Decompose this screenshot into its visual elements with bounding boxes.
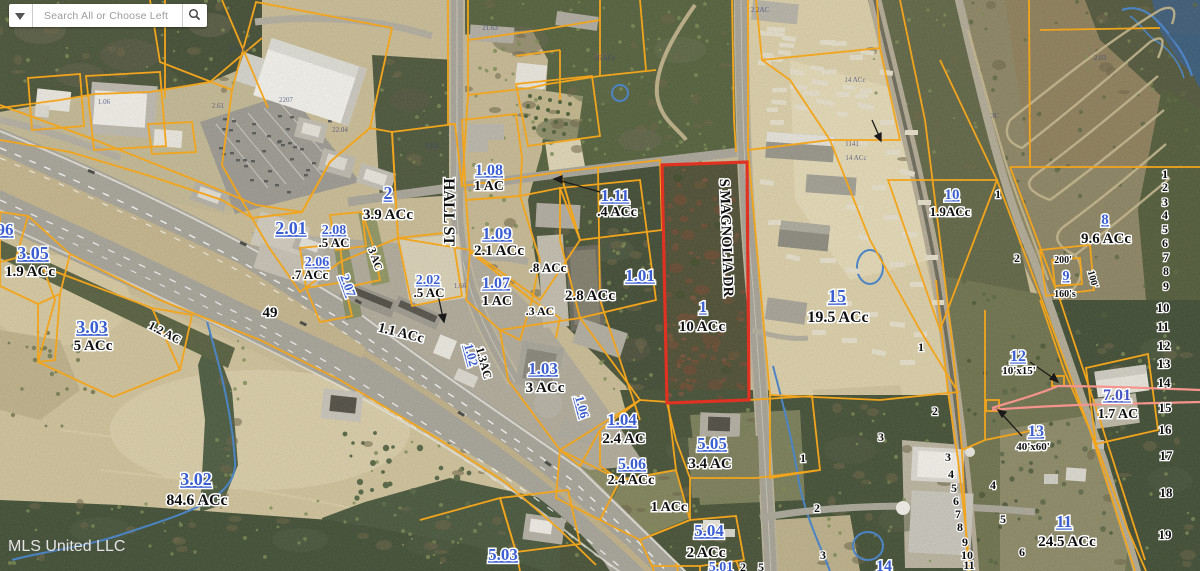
svg-text:10: 10: [945, 187, 960, 203]
svg-text:3.03: 3.03: [76, 317, 108, 337]
svg-text:2151: 2151: [425, 142, 440, 150]
svg-text:1.01: 1.01: [625, 266, 655, 285]
svg-text:2.2AC: 2.2AC: [751, 6, 770, 14]
svg-text:1.9 ACc: 1.9 ACc: [5, 264, 55, 280]
svg-text:9: 9: [962, 535, 968, 549]
svg-text:14 ACc: 14 ACc: [845, 154, 866, 162]
svg-text:5: 5: [758, 560, 764, 571]
svg-text:8: 8: [957, 520, 963, 534]
svg-text:3.9 ACc: 3.9 ACc: [363, 207, 413, 223]
svg-text:96: 96: [0, 220, 14, 239]
svg-text:3.05: 3.05: [17, 243, 49, 263]
svg-text:12: 12: [1010, 348, 1026, 365]
svg-text:22.04: 22.04: [332, 126, 348, 134]
svg-text:7.01: 7.01: [1103, 387, 1131, 404]
svg-text:4: 4: [1162, 208, 1168, 222]
svg-text:5.01: 5.01: [709, 560, 734, 571]
svg-text:.7 ACc: .7 ACc: [292, 267, 329, 282]
svg-text:.8 ACc: .8 ACc: [530, 260, 567, 275]
svg-text:5.04: 5.04: [694, 521, 724, 540]
svg-text:15: 15: [1159, 400, 1173, 415]
svg-text:1: 1: [918, 340, 924, 354]
svg-text:1.03: 1.03: [528, 359, 558, 378]
svg-text:14: 14: [876, 558, 892, 571]
svg-text:49: 49: [263, 305, 278, 321]
svg-text:6: 6: [953, 494, 959, 508]
svg-text:1.06: 1.06: [98, 98, 111, 106]
svg-text:1.04: 1.04: [607, 410, 637, 429]
svg-text:3: 3: [878, 430, 884, 444]
svg-text:1.7 AC: 1.7 AC: [1098, 407, 1138, 422]
svg-text:1.11: 1.11: [601, 186, 630, 205]
svg-text:21.63: 21.63: [482, 24, 498, 32]
svg-text:1.9ACc: 1.9ACc: [930, 204, 971, 219]
svg-text:1: 1: [699, 299, 707, 316]
svg-text:84.6 ACc: 84.6 ACc: [166, 492, 227, 509]
svg-text:5: 5: [1162, 222, 1168, 236]
svg-text:9: 9: [1163, 279, 1169, 293]
svg-text:1: 1: [800, 451, 806, 465]
svg-text:22 ACc: 22 ACc: [229, 46, 250, 54]
svg-text:11: 11: [963, 558, 974, 571]
svg-text:19.5 ACc: 19.5 ACc: [807, 309, 868, 326]
svg-text:.3 AC: .3 AC: [526, 304, 555, 318]
svg-text:24.5 ACc: 24.5 ACc: [1038, 534, 1096, 550]
svg-text:7: 7: [1163, 250, 1169, 264]
svg-text:10'x15': 10'x15': [1002, 365, 1036, 377]
svg-text:HALL ST: HALL ST: [440, 178, 457, 246]
svg-text:3.02: 3.02: [180, 469, 212, 489]
svg-text:2207: 2207: [279, 96, 294, 104]
svg-text:13: 13: [1028, 423, 1044, 440]
svg-text:2.8 ACc: 2.8 ACc: [565, 288, 615, 304]
svg-text:2 ACc: 2 ACc: [687, 545, 726, 561]
svg-text:2: 2: [740, 560, 746, 571]
svg-text:2: 2: [1014, 251, 1020, 265]
svg-text:16: 16: [1159, 422, 1173, 437]
svg-text:10 ACc: 10 ACc: [679, 319, 726, 335]
svg-text:2: 2: [1162, 180, 1168, 194]
svg-text:1: 1: [995, 187, 1001, 201]
svg-text:3C: 3C: [991, 112, 1000, 120]
svg-text:13: 13: [1158, 356, 1172, 371]
svg-text:.5 AC: .5 AC: [413, 285, 444, 300]
svg-text:6: 6: [1019, 545, 1025, 559]
svg-text:6: 6: [1162, 236, 1168, 250]
svg-text:2.03: 2.03: [1094, 54, 1107, 62]
svg-text:8: 8: [1163, 264, 1169, 278]
svg-text:1.66: 1.66: [454, 282, 467, 290]
svg-text:12: 12: [1158, 338, 1171, 353]
svg-text:5.06: 5.06: [618, 456, 646, 473]
svg-text:160's: 160's: [1054, 289, 1076, 300]
svg-text:1141: 1141: [845, 140, 859, 148]
svg-text:1 ACc: 1 ACc: [651, 500, 687, 515]
svg-text:1: 1: [1162, 167, 1168, 181]
svg-text:11: 11: [1056, 512, 1072, 531]
svg-text:3: 3: [1162, 195, 1168, 209]
svg-text:9.6 ACc: 9.6 ACc: [1081, 231, 1131, 247]
svg-text:3: 3: [945, 450, 951, 464]
svg-text:2: 2: [384, 183, 393, 203]
svg-text:9: 9: [1063, 269, 1070, 284]
svg-text:1.09: 1.09: [482, 224, 512, 243]
svg-text:40'x60': 40'x60': [1016, 441, 1050, 453]
svg-text:5: 5: [951, 481, 957, 495]
svg-text:11: 11: [1157, 319, 1169, 334]
svg-text:.5 AC: .5 AC: [318, 235, 349, 250]
svg-text:1.08: 1.08: [475, 162, 503, 179]
svg-text:18: 18: [1160, 485, 1174, 500]
svg-text:14: 14: [1158, 375, 1172, 390]
svg-text:5.03: 5.03: [488, 545, 518, 564]
svg-text:10: 10: [1157, 300, 1170, 315]
svg-text:1 AC: 1 AC: [474, 179, 504, 194]
svg-text:2.1 ACc: 2.1 ACc: [474, 243, 524, 259]
svg-text:16 ACc: 16 ACc: [594, 54, 615, 62]
svg-text:14 ACc: 14 ACc: [844, 76, 865, 84]
svg-text:2.61: 2.61: [212, 102, 225, 110]
svg-text:15: 15: [828, 286, 846, 306]
svg-text:2.4 ACc: 2.4 ACc: [608, 473, 655, 488]
svg-text:.4 ACc: .4 ACc: [597, 205, 637, 220]
svg-text:1.07: 1.07: [482, 275, 510, 292]
svg-text:2: 2: [932, 404, 938, 418]
svg-text:5.05: 5.05: [697, 434, 727, 453]
svg-text:19: 19: [1159, 527, 1173, 542]
svg-text:2.01: 2.01: [275, 218, 307, 238]
svg-text:3: 3: [820, 548, 826, 562]
svg-text:2.4 AC: 2.4 AC: [602, 431, 645, 447]
svg-text:4: 4: [990, 478, 996, 492]
svg-text:3 ACc: 3 ACc: [526, 380, 565, 396]
svg-text:17: 17: [1160, 448, 1174, 463]
svg-text:4: 4: [948, 467, 954, 481]
svg-text:200': 200': [1054, 255, 1072, 266]
svg-text:1 AC: 1 AC: [482, 294, 512, 309]
svg-text:5: 5: [1000, 512, 1006, 526]
svg-text:8: 8: [1101, 212, 1109, 228]
svg-text:5 ACc: 5 ACc: [74, 338, 113, 354]
svg-text:3.4 AC: 3.4 AC: [688, 456, 731, 472]
svg-text:7: 7: [955, 507, 961, 521]
svg-text:2: 2: [814, 501, 820, 515]
